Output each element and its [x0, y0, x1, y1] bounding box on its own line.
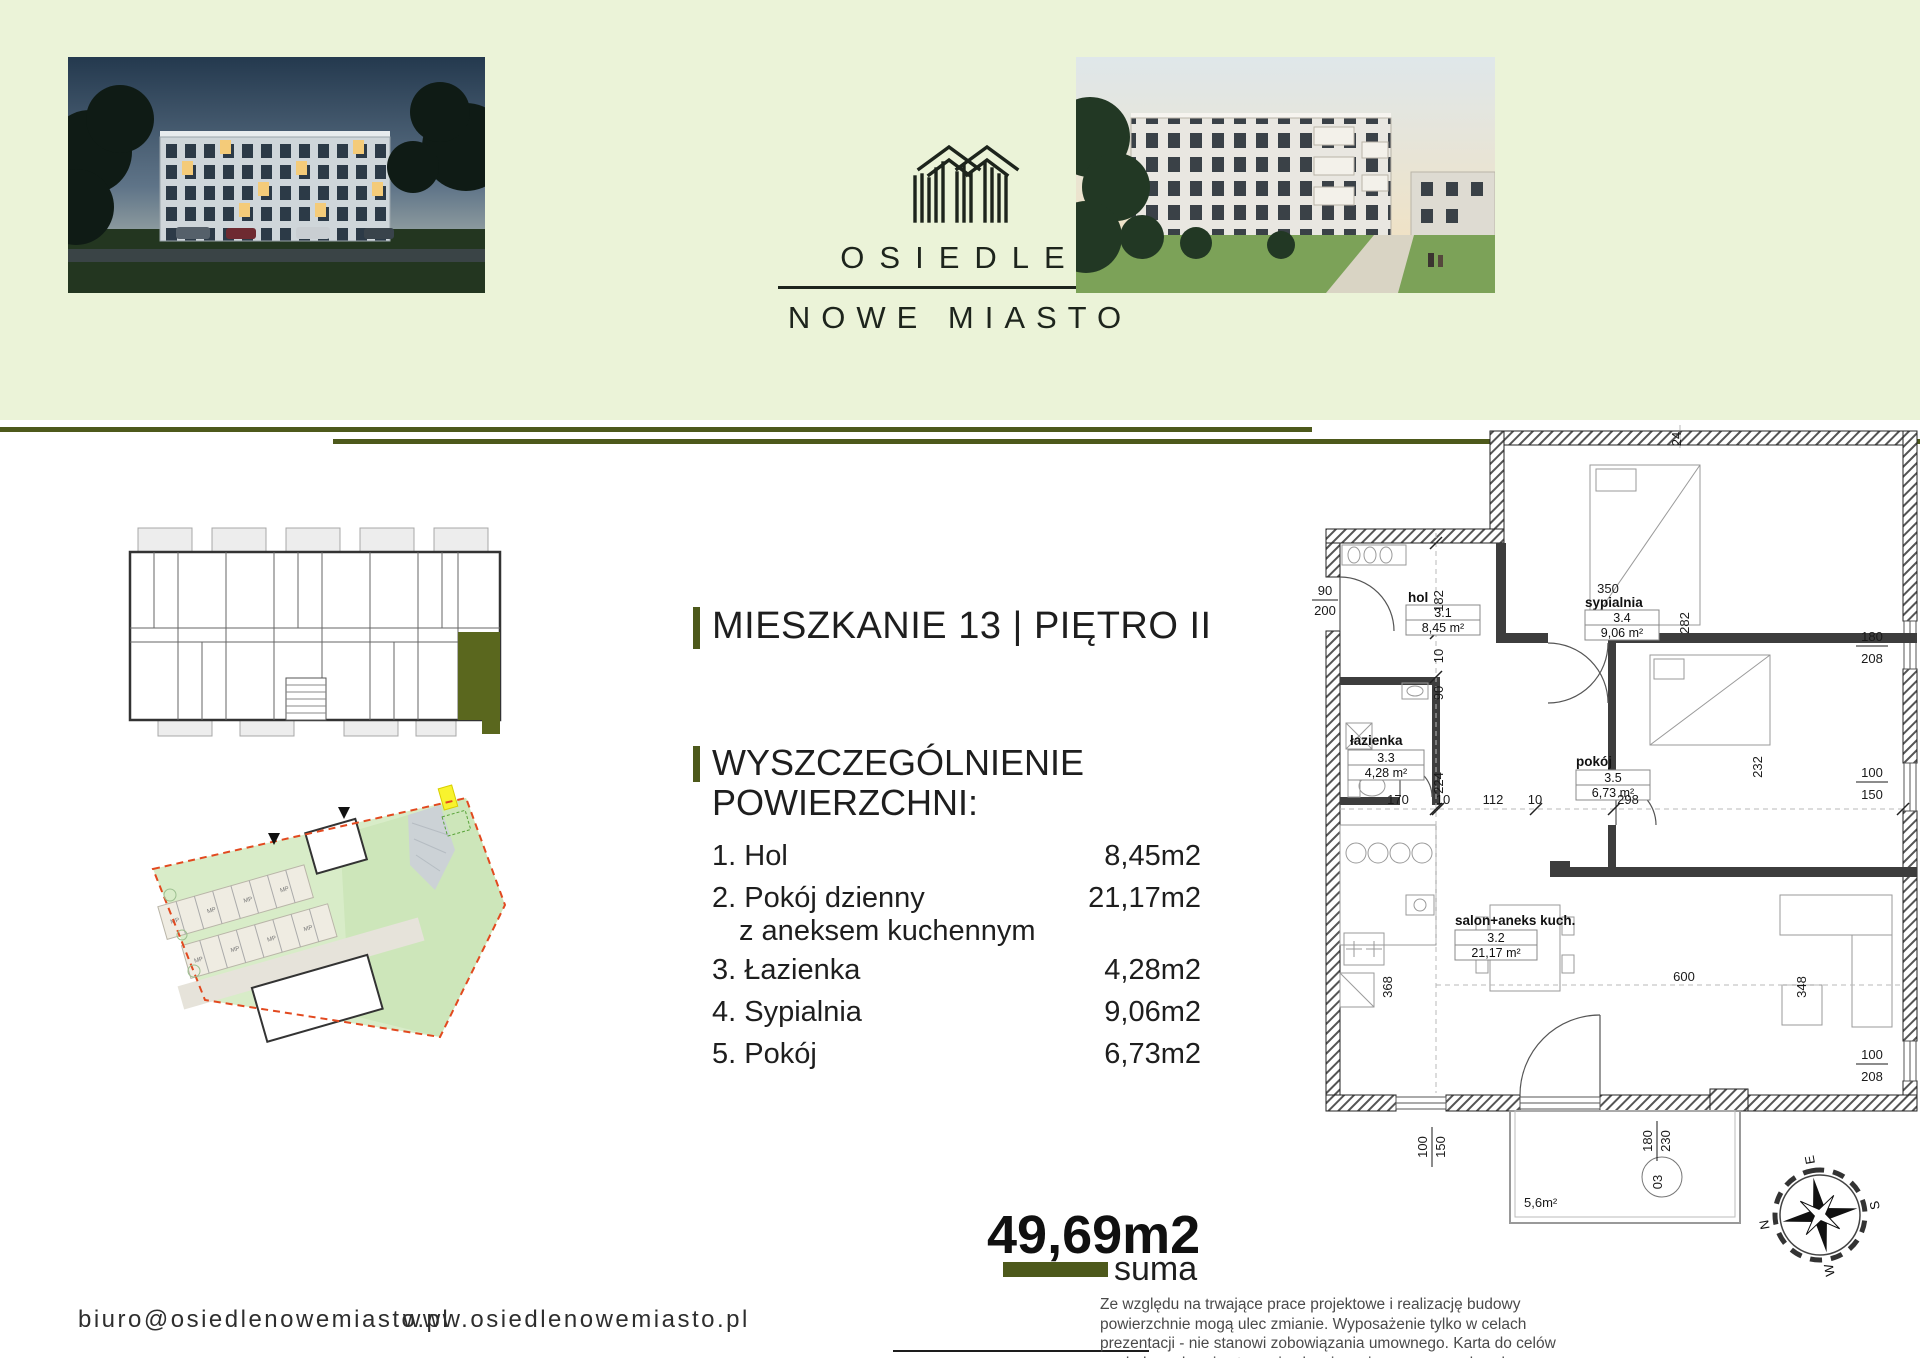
room-row-2: 2. Pokój dzienny z aneksem kuchennym 21,… [712, 882, 1201, 948]
site-plan: MP MP MP MP MP MP MP MP [140, 775, 510, 1043]
room-area: 4,28 m² [1365, 766, 1407, 780]
header: OSIEDLE NOWE MIASTO [0, 0, 1920, 420]
dim-win3-t: 100 [1861, 1047, 1883, 1062]
room-number: 3.4 [1613, 611, 1630, 625]
room-area: 4,28m2 [1104, 954, 1201, 987]
room-label-salon: salon+aneks kuch. 3.2 21,17 m² [1455, 913, 1575, 960]
room-name-label: pokój [1576, 754, 1612, 769]
dim-10b: 10 [1436, 792, 1450, 807]
dim-348: 348 [1794, 976, 1809, 998]
total-label: suma [1114, 1250, 1197, 1289]
logo-mark-icon [905, 135, 1025, 223]
room-row-1: 1. Hol 8,45m2 [712, 840, 1201, 873]
room-name: 4. Sypialnia [712, 996, 862, 1029]
room-name-label: łazienka [1350, 733, 1403, 748]
dim-win2-b: 150 [1861, 787, 1883, 802]
compass-n: N [1756, 1219, 1772, 1231]
balcony-number: 03 [1650, 1175, 1665, 1189]
room-number: 3.2 [1487, 931, 1504, 945]
room-list: 1. Hol 8,45m2 2. Pokój dzienny z aneksem… [712, 840, 1201, 1080]
compass-rose-icon: N E S W [1746, 1144, 1892, 1287]
room-area: 21,17m2 [1088, 882, 1201, 948]
room-number: 3.3 [1377, 751, 1394, 765]
building-photo-day-image [1076, 57, 1495, 293]
apartment-floorplan: hol 3.1 8,45 m² 350 sypialnia 3.4 9,06 m… [1310, 425, 1920, 1305]
dim-298: 298 [1617, 792, 1639, 807]
dim-224: 224 [1431, 772, 1446, 794]
separator-line-top [0, 427, 1312, 432]
compass-w: W [1821, 1262, 1838, 1277]
room-number: 3.5 [1604, 771, 1621, 785]
dim-350: 350 [1597, 581, 1619, 596]
dim-182: 182 [1431, 590, 1446, 612]
dim-bal2-b: 230 [1658, 1130, 1673, 1152]
highlighted-unit [458, 632, 500, 720]
room-name-label: sypialnia [1585, 595, 1643, 610]
apartment-card-page: OSIEDLE NOWE MIASTO [0, 0, 1920, 1358]
dim-bal2-t: 180 [1640, 1130, 1655, 1152]
dim-10c: 10 [1528, 792, 1542, 807]
floor-overview-plan [100, 520, 510, 740]
dim-win1-t: 180 [1861, 629, 1883, 644]
building-photo-dusk-image [68, 57, 485, 293]
balcony-area-label: 5,6m² [1524, 1195, 1558, 1210]
room-name-line2: z aneksem kuchennym [739, 915, 1036, 948]
dim-232: 232 [1750, 756, 1765, 778]
room-name: 5. Pokój [712, 1038, 817, 1071]
compass-s: S [1866, 1199, 1882, 1210]
dim-bal1-t: 100 [1415, 1136, 1430, 1158]
building-photo-dusk [68, 57, 485, 293]
section-accent-bar [693, 746, 700, 782]
room-area: 21,17 m² [1471, 946, 1520, 960]
dim-win1-b: 208 [1861, 651, 1883, 666]
room-row-5: 5. Pokój 6,73m2 [712, 1038, 1201, 1071]
room-name-label: salon+aneks kuch. [1455, 913, 1575, 928]
title-accent-bar [693, 607, 700, 649]
windows [1396, 621, 1916, 1109]
floor-overview-plan-image [100, 520, 510, 740]
dim-170: 170 [1387, 792, 1409, 807]
room-name: 2. Pokój dzienny z aneksem kuchennym [712, 882, 1036, 948]
section-heading-line1: WYSZCZEGÓLNIENIE [712, 743, 1084, 783]
section-heading-line2: POWIERZCHNI: [712, 783, 1084, 823]
dim-368: 368 [1380, 976, 1395, 998]
room-area: 9,06m2 [1104, 996, 1201, 1029]
room-label-lazienka: łazienka 3.3 4,28 m² [1348, 733, 1424, 780]
room-name: 1. Hol [712, 840, 788, 873]
total-accent-bar [1003, 1262, 1108, 1277]
site-plan-image: MP MP MP MP MP MP MP MP [140, 775, 510, 1043]
room-area: 9,06 m² [1601, 626, 1643, 640]
compass-e: E [1802, 1154, 1818, 1165]
dim-door-width: 90 [1318, 583, 1332, 598]
room-area: 8,45m2 [1104, 840, 1201, 873]
dim-bal1-b: 150 [1433, 1136, 1448, 1158]
page-title: MIESZKANIE 13 | PIĘTRO II [712, 605, 1212, 648]
balcony: 5,6m² 03 100 150 180 230 [1415, 1111, 1740, 1223]
room-name: 3. Łazienka [712, 954, 860, 987]
dim-112: 112 [1483, 792, 1504, 807]
building-photo-day [1076, 57, 1495, 293]
room-label-sypialnia: 350 sypialnia 3.4 9,06 m² [1585, 581, 1659, 640]
room-row-4: 4. Sypialnia 9,06m2 [712, 996, 1201, 1029]
dim-600: 600 [1673, 969, 1695, 984]
footer-email-link[interactable]: biuro@osiedlenowemiasto.pl [78, 1306, 450, 1334]
dim-win3-b: 208 [1861, 1069, 1883, 1084]
dim-10: 10 [1431, 649, 1446, 663]
room-name-label: hol [1408, 590, 1428, 605]
footer-website-link[interactable]: www.osiedlenowemiasto.pl [403, 1306, 750, 1334]
dim-24: 24 [1669, 432, 1684, 446]
footer-disclaimer: Ze względu na trwające prace projektowe … [1100, 1295, 1578, 1358]
room-row-3: 3. Łazienka 4,28m2 [712, 954, 1201, 987]
dim-win2-t: 100 [1861, 765, 1883, 780]
section-heading: WYSZCZEGÓLNIENIE POWIERZCHNI: [712, 743, 1084, 823]
logo-text-line2: NOWE MIASTO [770, 300, 1150, 336]
dim-90: 90 [1431, 686, 1446, 700]
dim-282: 282 [1677, 612, 1692, 634]
room-area: 8,45 m² [1422, 621, 1464, 635]
dim-door-height: 200 [1314, 603, 1336, 618]
apartment-floorplan-image: hol 3.1 8,45 m² 350 sypialnia 3.4 9,06 m… [1310, 425, 1920, 1305]
room-area: 6,73m2 [1104, 1038, 1201, 1071]
